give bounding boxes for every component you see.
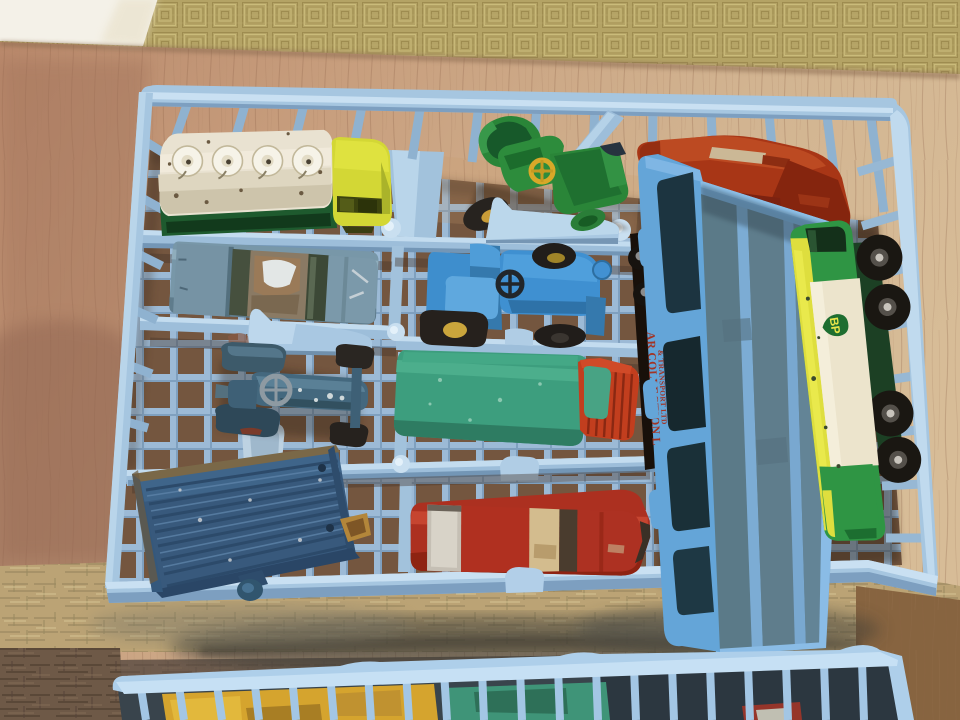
svg-text:BP: BP (827, 316, 843, 335)
